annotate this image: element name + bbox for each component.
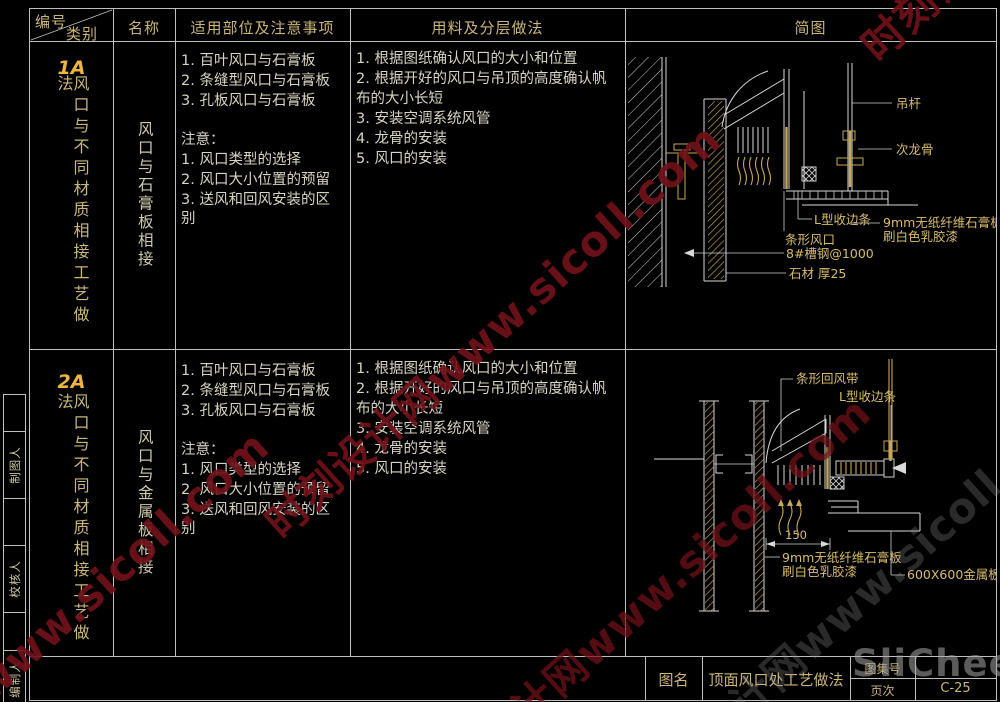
- label-dim-150: 150: [785, 528, 807, 542]
- header-id-label: 编号: [35, 11, 67, 32]
- label-l-trim: L型收边条: [839, 389, 896, 404]
- checker-label: 校核人: [7, 560, 23, 598]
- hanger-rod: [884, 359, 897, 461]
- header-name-label: 名称: [113, 17, 175, 38]
- grid-line: [30, 656, 996, 657]
- label-hanger: 吊杆: [896, 96, 922, 111]
- signature-box-drafter: 制图人: [3, 431, 26, 499]
- grid-line: [850, 678, 996, 679]
- footer-page-label: 页次: [850, 682, 915, 699]
- header-diagram-label: 简图: [625, 17, 996, 38]
- row-2a-materials: 1. 根据图纸确认风口的大小和位置 2. 根据开好的风口与吊顶的高度确认帆 布的…: [356, 357, 624, 477]
- row-1a-materials: 1. 根据图纸确认风口的大小和位置 2. 根据开好的风口与吊顶的高度确认帆 布的…: [356, 47, 624, 167]
- stone-panel: [704, 99, 726, 281]
- label-metal-panel: 600X600金属板: [907, 567, 996, 582]
- label-gypsum-1: 9mm无纸纤维石膏板: [883, 215, 996, 230]
- label-gypsum-2: 刷白色乳胶漆: [782, 564, 857, 579]
- footer-atlas-label: 图集号: [850, 660, 915, 677]
- header-category-label: 类别: [66, 23, 98, 44]
- vent-grille: [778, 415, 844, 489]
- row-1a-notes: 1. 百叶风口与石膏板 2. 条缝型风口与石膏板 3. 孔板风口与石膏板 注意：…: [181, 49, 349, 227]
- stud-posts: [699, 401, 769, 611]
- label-gypsum-2: 刷白色乳胶漆: [883, 229, 958, 244]
- compiler-label: 编制人: [7, 660, 23, 698]
- detail-table: 编号 类别 名称 适用部位及注意事项 用料及分层做法 简图 1A 风口与不同材质…: [29, 8, 997, 701]
- footer-page-value: C-25: [915, 681, 996, 696]
- signature-box-compiler: 编制人: [3, 650, 26, 702]
- duct-fabric: [722, 71, 784, 129]
- label-l-trim: L型收边条: [814, 212, 871, 227]
- label-sub-keel: 次龙骨: [896, 142, 934, 157]
- footer-drawing-title: 顶面风口处工艺做法: [702, 669, 850, 690]
- wall-bracket: [666, 144, 704, 199]
- signature-box-empty: [3, 498, 26, 546]
- row-1a-name: 风口与石膏板相接: [113, 41, 175, 349]
- row-2a-name: 风口与金属板相接: [113, 349, 175, 656]
- label-strip-vent: 条形风口: [785, 232, 835, 247]
- label-gypsum-1: 9mm无纸纤维石膏板: [782, 550, 902, 565]
- row-2a-category: 风口与不同材质相接工艺做法: [30, 393, 113, 651]
- row-2a-id: 2A: [30, 371, 113, 393]
- grid-line: [175, 9, 176, 656]
- signature-box-checker: 校核人: [3, 545, 26, 613]
- label-stone: 石材 厚25: [789, 266, 846, 281]
- footer-name-label: 图名: [645, 669, 702, 690]
- signature-box-empty: [3, 612, 26, 651]
- ceiling-steps: [828, 501, 920, 531]
- diagram-1a: 吊杆 次龙骨 L型收边条 9mm无纸纤维石膏板 刷白色乳胶漆 条形风口 8#槽钢…: [626, 41, 996, 349]
- signature-strip: 制图人 校核人 编制人: [3, 395, 26, 702]
- drafter-label: 制图人: [7, 446, 23, 484]
- wall-hatch: [628, 57, 666, 287]
- hanger-rod: [837, 63, 863, 191]
- signature-box-empty: [3, 394, 26, 432]
- duct-fabric: [766, 409, 826, 463]
- drawing-sheet-page: 时刻设计网www.sicoll.com 时刻设计网www.sicoll.com …: [0, 0, 1000, 702]
- header-notes-label: 适用部位及注意事项: [175, 17, 350, 38]
- row-1a-category: 风口与不同材质相接工艺做法: [30, 75, 113, 343]
- label-channel-steel: 8#槽钢@1000: [786, 246, 874, 261]
- return-air-assembly: [836, 459, 906, 477]
- label-return-strip: 条形回风带: [796, 371, 859, 386]
- vent-grille: [738, 69, 790, 189]
- row-2a-notes: 1. 百叶风口与石膏板 2. 条缝型风口与石膏板 3. 孔板风口与石膏板 注意：…: [181, 359, 349, 537]
- diagram-2a: 条形回风带 L型收边条 150 9mm无纸纤维石膏板 刷白色乳胶漆 600X60…: [626, 349, 996, 656]
- grid-line: [350, 9, 351, 656]
- header-materials-label: 用料及分层做法: [350, 17, 625, 38]
